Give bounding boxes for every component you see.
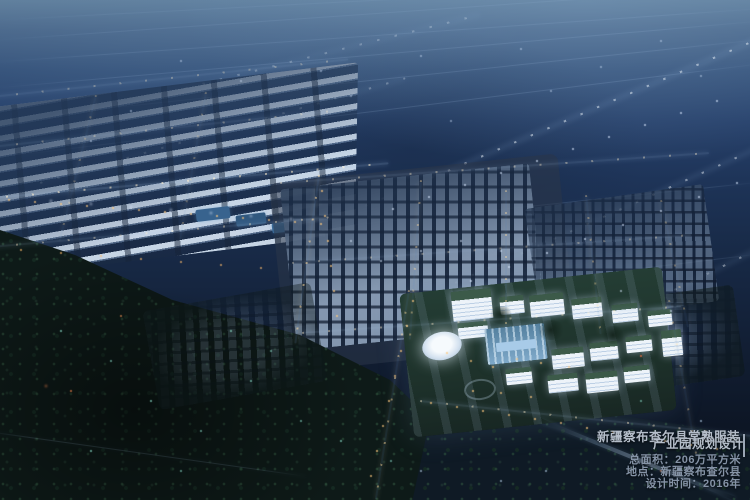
campus-building xyxy=(647,309,673,327)
stat-design-year: 设计时间：2016年 xyxy=(464,478,741,490)
campus-building xyxy=(611,303,639,324)
campus-building xyxy=(505,367,533,386)
stat-total-area: 总面积：206万平方米 xyxy=(464,454,741,466)
campus-building xyxy=(625,335,653,354)
project-stats: 总面积：206万平方米 地点：新疆察布查尔县 设计时间：2016年 xyxy=(464,454,741,490)
campus-building xyxy=(451,288,494,322)
project-info-overlay: 新疆察布查尔县常熟服装 产业园规划设计 总面积：206万平方米 地点：新疆察布查… xyxy=(464,431,744,490)
city-street xyxy=(505,190,507,340)
campus-building xyxy=(661,329,684,357)
tree-cluster xyxy=(488,306,514,324)
tree-cluster xyxy=(536,320,566,340)
glass-roof xyxy=(496,339,537,352)
title-divider xyxy=(743,434,745,457)
campus-building xyxy=(547,372,579,393)
aerial-rendering-scene: 新疆察布查尔县常熟服装 产业园规划设计 总面积：206万平方米 地点：新疆察布查… xyxy=(0,0,750,500)
campus-building xyxy=(623,365,651,384)
campus-building xyxy=(585,370,619,393)
campus-building xyxy=(551,346,585,369)
tree-cluster xyxy=(600,326,626,344)
stat-location: 地点：新疆察布查尔县 xyxy=(464,466,741,478)
scattered-lights-orange xyxy=(0,0,2,2)
